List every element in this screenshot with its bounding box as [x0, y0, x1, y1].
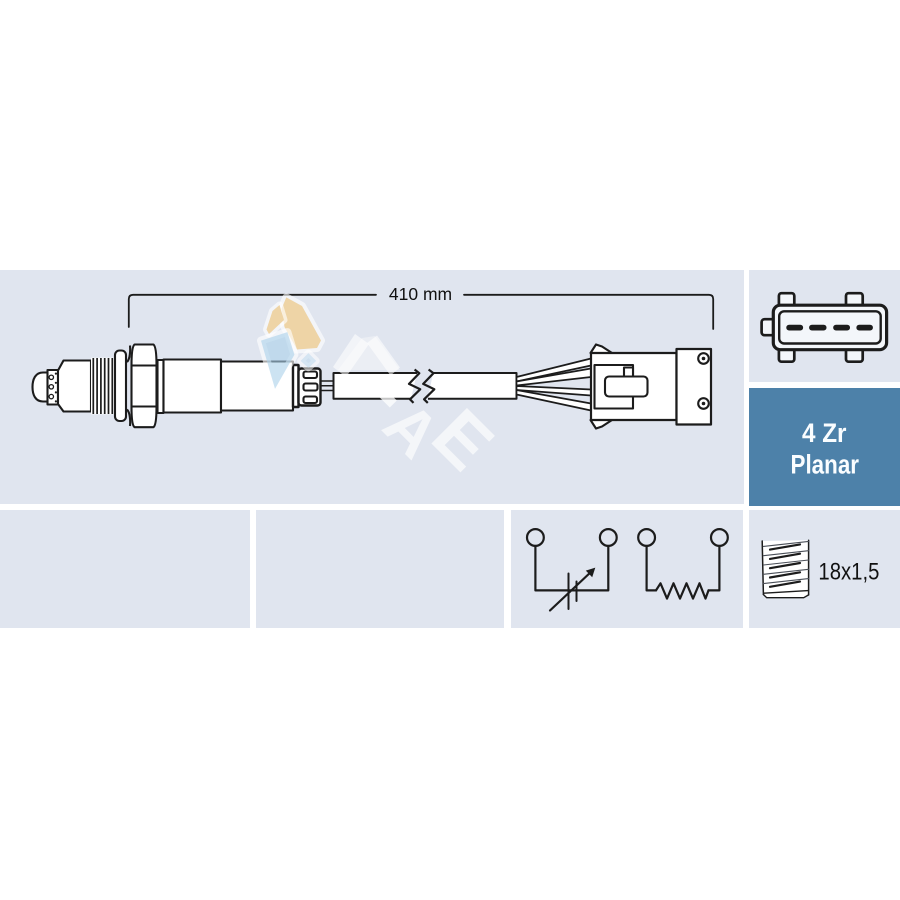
svg-text:4 Zr: 4 Zr [802, 418, 847, 448]
svg-text:Planar: Planar [791, 450, 860, 480]
svg-text:410 mm: 410 mm [389, 284, 452, 304]
svg-text:18x1,5: 18x1,5 [818, 558, 879, 585]
